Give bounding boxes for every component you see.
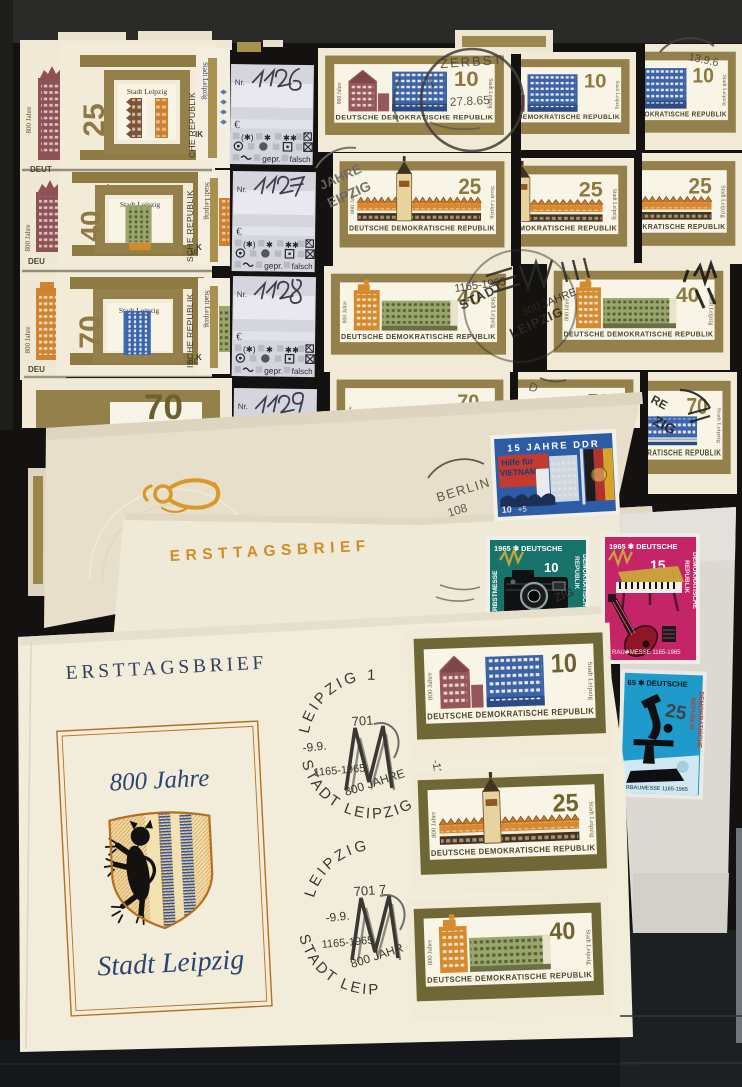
svg-text:DEMOKRATISCHE: DEMOKRATISCHE xyxy=(581,554,588,612)
svg-text:€: € xyxy=(234,119,240,131)
svg-text:✱: ✱ xyxy=(266,344,273,354)
svg-text:10: 10 xyxy=(544,560,558,575)
svg-text:701: 701 xyxy=(351,713,374,729)
svg-text:1965 ✱ DEUTSCHE: 1965 ✱ DEUTSCHE xyxy=(609,542,677,551)
svg-text:REPUBLIK: REPUBLIK xyxy=(683,560,690,594)
svg-text:(✱): (✱) xyxy=(243,239,256,249)
svg-text:IK: IK xyxy=(195,130,203,139)
svg-text:gepr.: gepr. xyxy=(264,365,283,375)
svg-text:Hilfe für: Hilfe für xyxy=(501,456,534,468)
svg-text:(✱): (✱) xyxy=(243,344,256,354)
svg-text:Nr.: Nr. xyxy=(237,185,247,194)
svg-text:Nr.: Nr. xyxy=(237,290,247,299)
svg-text:10: 10 xyxy=(501,504,512,515)
svg-text:800 Jahre: 800 Jahre xyxy=(24,326,32,353)
svg-text:✱✱: ✱✱ xyxy=(285,345,299,355)
svg-text:✱✱: ✱✱ xyxy=(285,240,299,250)
svg-text:REPUBLIK: REPUBLIK xyxy=(688,697,696,731)
svg-text:K: K xyxy=(196,353,202,362)
svg-text:falsch: falsch xyxy=(290,155,311,164)
svg-text:RAU✱MESSE 1165-1965: RAU✱MESSE 1165-1965 xyxy=(612,649,681,656)
svg-text:CHE REPUBLIK: CHE REPUBLIK xyxy=(187,92,197,158)
svg-text:DEMOKRATISCHE: DEMOKRATISCHE xyxy=(691,552,698,610)
svg-text:falsch: falsch xyxy=(292,367,313,376)
svg-text:DEU: DEU xyxy=(28,257,45,266)
svg-text:Stadt Leipzig: Stadt Leipzig xyxy=(203,182,211,220)
svg-text:25: 25 xyxy=(78,103,111,136)
svg-text:gepr.: gepr. xyxy=(262,153,281,163)
svg-text:€: € xyxy=(236,226,242,238)
svg-text:-9.9.: -9.9. xyxy=(302,739,327,755)
svg-text:DEU: DEU xyxy=(28,365,45,374)
svg-text:(✱): (✱) xyxy=(241,132,254,142)
svg-text:40: 40 xyxy=(75,210,106,241)
svg-text:Stadt Leipzig: Stadt Leipzig xyxy=(201,62,209,100)
svg-text:25: 25 xyxy=(664,700,689,724)
svg-text:✱✱: ✱✱ xyxy=(283,133,297,143)
svg-text:Nr.: Nr. xyxy=(238,402,248,411)
svg-text:800 Jahre: 800 Jahre xyxy=(24,224,32,251)
svg-text:-9.9.: -9.9. xyxy=(325,909,350,925)
svg-text:+5: +5 xyxy=(518,504,528,513)
svg-text:70: 70 xyxy=(74,315,107,348)
svg-text:REPUBLIK: REPUBLIK xyxy=(573,556,580,590)
svg-text:✱: ✱ xyxy=(266,239,273,249)
svg-text:Stadt Leipzig: Stadt Leipzig xyxy=(203,290,211,328)
svg-text:800 Jahre: 800 Jahre xyxy=(109,765,210,797)
svg-text:Nr.: Nr. xyxy=(235,78,245,87)
svg-text:gepr.: gepr. xyxy=(264,260,283,270)
svg-text:K: K xyxy=(196,243,202,252)
svg-text:€: € xyxy=(236,331,242,343)
svg-text:falsch: falsch xyxy=(292,262,313,271)
svg-text:27.8.65: 27.8.65 xyxy=(449,93,490,109)
svg-text:800 Jahre: 800 Jahre xyxy=(25,106,33,133)
svg-text:✱: ✱ xyxy=(264,132,271,142)
svg-text:Stadt Leipzig: Stadt Leipzig xyxy=(127,87,167,96)
